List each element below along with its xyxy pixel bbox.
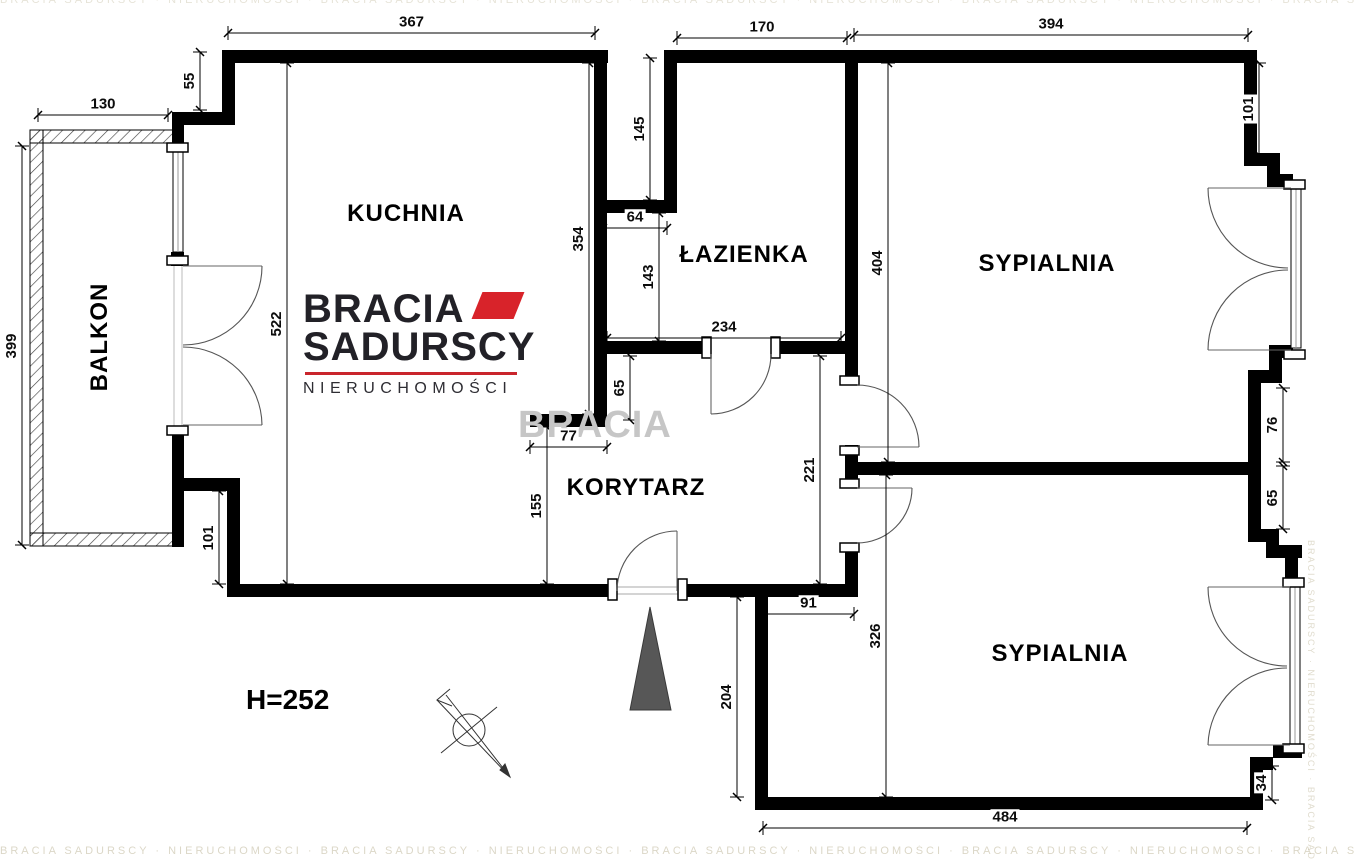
dim-label: 221 [802, 455, 818, 484]
floor-plan: BRACIA SADURSCY · NIERUCHOMOŚCI · BRACIA… [0, 0, 1355, 861]
dim-label: 130 [88, 96, 117, 112]
dim-label: 143 [641, 262, 657, 291]
dim-label: 77 [558, 428, 579, 444]
dim-label: 145 [632, 114, 648, 143]
dim-label: 55 [182, 71, 198, 92]
dim-label: 65 [1265, 487, 1281, 508]
dim-label: 91 [798, 595, 819, 611]
room-label: ŁAZIENKA [679, 241, 808, 269]
dim-label: 326 [868, 621, 884, 650]
logo-brand-line1: BRACIA [303, 289, 465, 329]
dim-label: 155 [529, 491, 545, 520]
logo-brand-line3: NIERUCHOMOŚCI [303, 381, 535, 397]
logo-red-flag-icon [471, 292, 524, 319]
room-label: KORYTARZ [567, 474, 706, 502]
dim-label: 101 [1241, 94, 1257, 123]
dim-label: 64 [625, 209, 646, 225]
dim-label: 34 [1254, 773, 1270, 794]
dim-label: 394 [1036, 16, 1065, 32]
north-arrow [437, 689, 510, 777]
entrance-marker [630, 607, 671, 710]
dim-label: 76 [1265, 415, 1281, 436]
dim-label: 204 [719, 682, 735, 711]
dim-label: 234 [709, 319, 738, 335]
jambs [167, 143, 1305, 753]
dim-label: 484 [990, 809, 1019, 825]
room-label: SYPIALNIA [978, 250, 1115, 278]
logo-brand-line2: SADURSCY [303, 327, 535, 367]
watermark-text: BRACIA [518, 404, 672, 447]
dim-label: 399 [4, 331, 20, 360]
dim-label: 65 [612, 378, 628, 399]
ceiling-height-note: H=252 [246, 684, 329, 716]
agency-logo: BRACIA SADURSCY NIERUCHOMOŚCI [303, 289, 535, 397]
plan-linework [0, 0, 1355, 861]
dim-label: 522 [269, 309, 285, 338]
room-label: BALKON [86, 283, 114, 392]
room-label: KUCHNIA [347, 200, 465, 228]
dim-label: 170 [747, 19, 776, 35]
dim-label: 404 [870, 248, 886, 277]
room-label: SYPIALNIA [991, 640, 1128, 668]
dim-label: 367 [397, 14, 426, 30]
dim-label: 354 [571, 224, 587, 253]
dim-label: 101 [201, 523, 217, 552]
logo-divider [305, 372, 517, 375]
